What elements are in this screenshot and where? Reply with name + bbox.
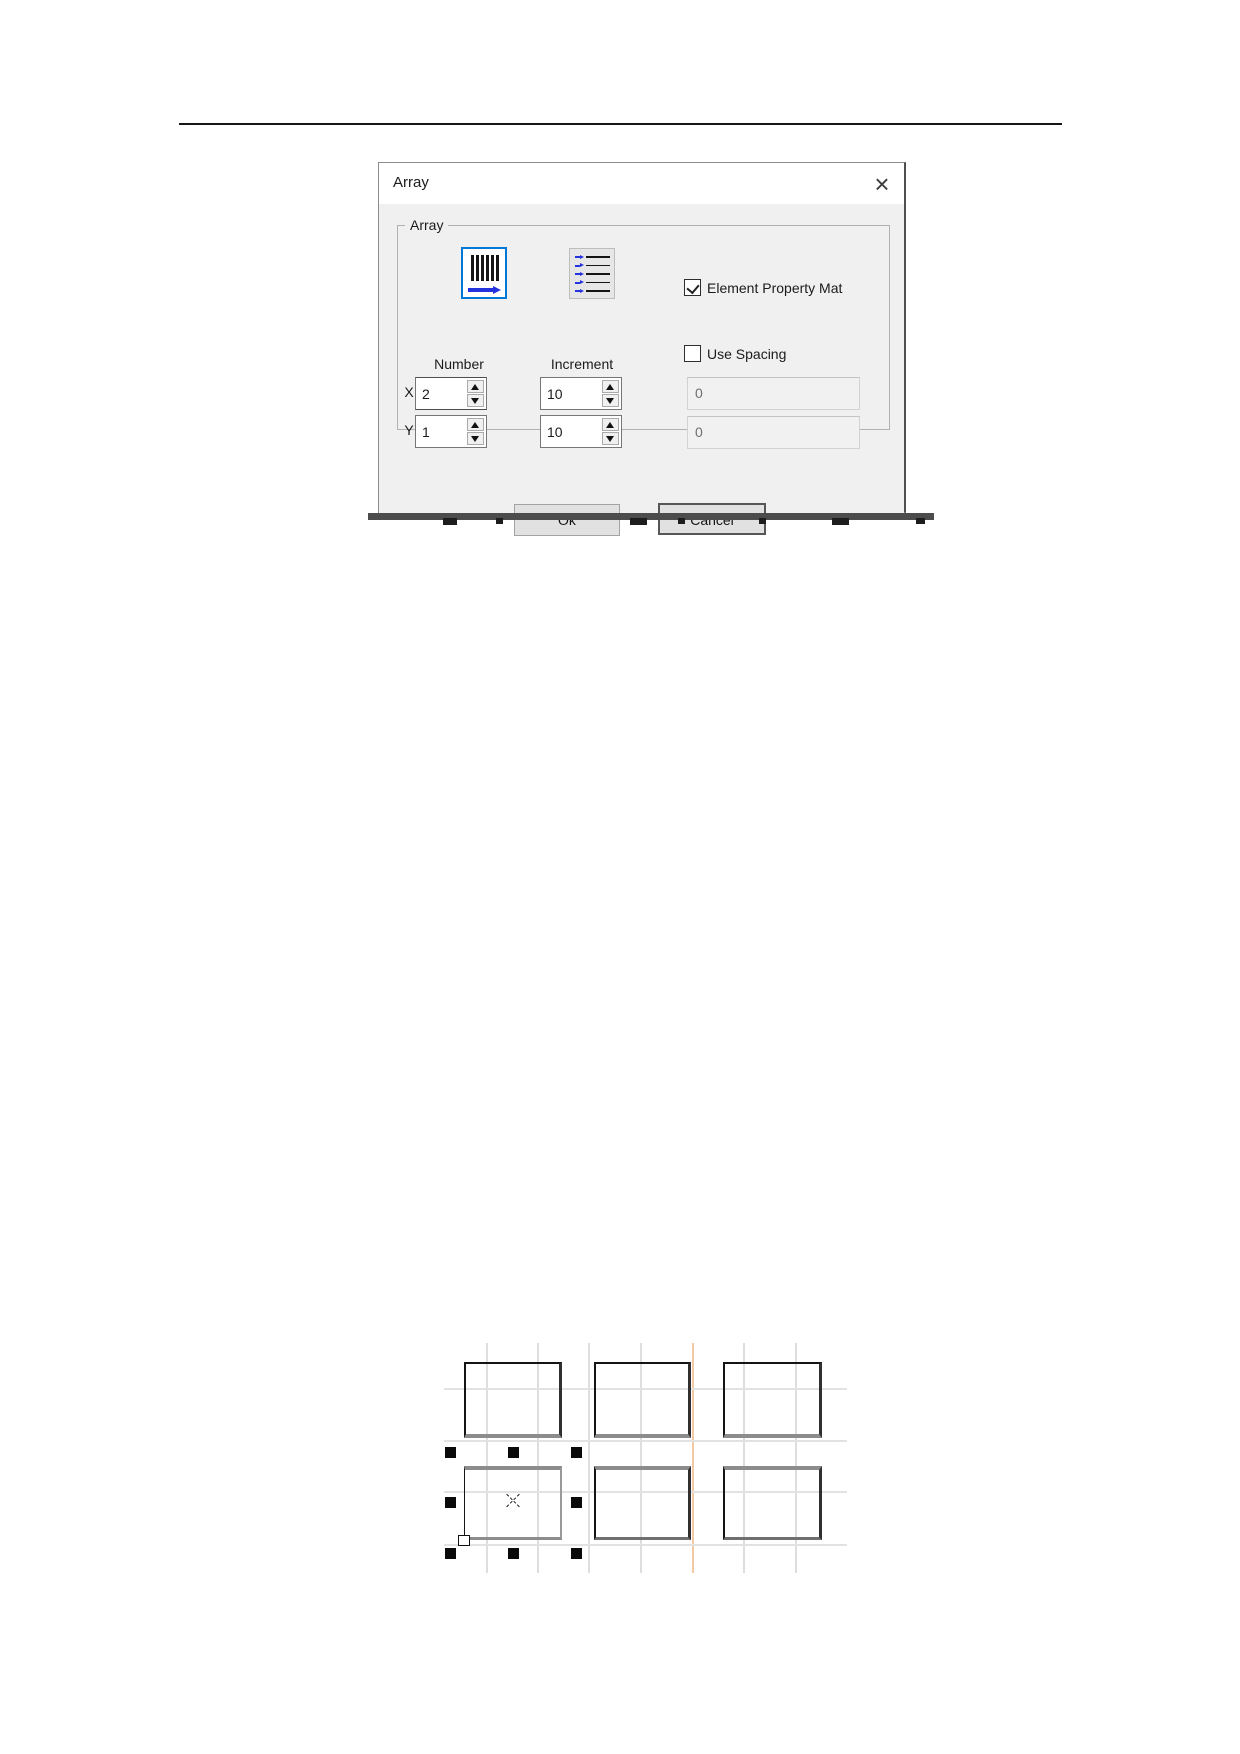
page-header-rule <box>179 123 1062 125</box>
spin-down-button[interactable] <box>602 394 619 407</box>
ok-button[interactable]: Ok <box>514 504 620 536</box>
screenshot-edge-artifact <box>443 518 457 525</box>
selection-handle[interactable] <box>571 1497 582 1508</box>
spin-up-button[interactable] <box>467 380 484 393</box>
selection-handle[interactable] <box>571 1548 582 1559</box>
y-increment-spinner[interactable]: 10 <box>540 415 622 448</box>
screenshot-edge-artifact <box>759 518 766 524</box>
screenshot-edge-artifact <box>630 518 647 525</box>
spin-up-button[interactable] <box>602 380 619 393</box>
use-spacing-label: Use Spacing <box>707 346 786 362</box>
number-column-label: Number <box>427 356 491 372</box>
selection-handle[interactable] <box>571 1447 582 1458</box>
arrow-down-icon <box>606 436 614 442</box>
rectangle[interactable] <box>594 1466 691 1540</box>
spin-down-button[interactable] <box>467 394 484 407</box>
rectangle[interactable] <box>464 1362 562 1438</box>
spin-up-button[interactable] <box>467 418 484 431</box>
selection-center-x-marker <box>503 1491 523 1511</box>
x-array-mode-button[interactable] <box>461 247 507 299</box>
y-increment-value[interactable]: 10 <box>547 424 563 440</box>
selection-handle[interactable] <box>445 1497 456 1508</box>
selection-handle[interactable] <box>508 1548 519 1559</box>
spin-down-button[interactable] <box>467 432 484 445</box>
screenshot-edge-artifact <box>496 518 503 524</box>
horizontal-lines-arrows-icon <box>575 254 611 293</box>
dialog-title-bar: Array × <box>379 163 904 204</box>
dialog-title: Array <box>393 174 429 191</box>
selection-handle[interactable] <box>508 1447 519 1458</box>
array-group-label: Array <box>405 217 448 233</box>
element-property-label: Element Property Mat <box>707 280 865 296</box>
arrow-down-icon <box>606 398 614 404</box>
increment-column-label: Increment <box>539 356 625 372</box>
arrow-up-icon <box>471 422 479 428</box>
document-page: Array × Array <box>0 0 1240 1754</box>
screenshot-edge-artifact <box>832 518 849 525</box>
grid-line-vertical-accent <box>692 1343 694 1573</box>
x-increment-value[interactable]: 10 <box>547 386 563 402</box>
arrow-up-icon <box>606 384 614 390</box>
selection-handle[interactable] <box>445 1447 456 1458</box>
arrow-up-icon <box>606 422 614 428</box>
x-increment-spinner[interactable]: 10 <box>540 377 622 410</box>
x-number-value[interactable]: 2 <box>422 386 430 402</box>
y-array-mode-button[interactable] <box>569 248 615 299</box>
grid-line-horizontal <box>444 1544 847 1546</box>
rectangle[interactable] <box>723 1362 822 1438</box>
arrow-down-icon <box>471 436 479 442</box>
rectangle[interactable] <box>594 1362 691 1438</box>
close-icon: × <box>874 169 889 199</box>
spin-up-button[interactable] <box>602 418 619 431</box>
close-button[interactable]: × <box>866 169 898 199</box>
rectangle[interactable] <box>723 1466 822 1540</box>
origin-anchor-handle[interactable] <box>458 1535 470 1546</box>
vertical-bars-icon <box>471 255 499 281</box>
selection-handle[interactable] <box>445 1548 456 1559</box>
right-arrow-icon <box>468 286 501 294</box>
y-spacing-field: 0 <box>687 416 860 449</box>
screenshot-edge-artifact <box>678 518 685 524</box>
dialog-body: Array Number Increment <box>379 204 904 514</box>
arrow-down-icon <box>471 398 479 404</box>
check-icon <box>686 281 699 295</box>
grid-line-horizontal <box>444 1440 847 1442</box>
grid-line-vertical <box>588 1343 590 1573</box>
arrow-up-icon <box>471 384 479 390</box>
array-dialog: Array × Array <box>378 162 906 513</box>
element-property-checkbox[interactable] <box>684 279 701 296</box>
use-spacing-checkbox[interactable] <box>684 345 701 362</box>
screenshot-edge-artifact <box>916 518 925 524</box>
y-number-value[interactable]: 1 <box>422 424 430 440</box>
spin-down-button[interactable] <box>602 432 619 445</box>
y-number-spinner[interactable]: 1 <box>415 415 487 448</box>
x-number-spinner[interactable]: 2 <box>415 377 487 410</box>
x-spacing-field: 0 <box>687 377 860 410</box>
